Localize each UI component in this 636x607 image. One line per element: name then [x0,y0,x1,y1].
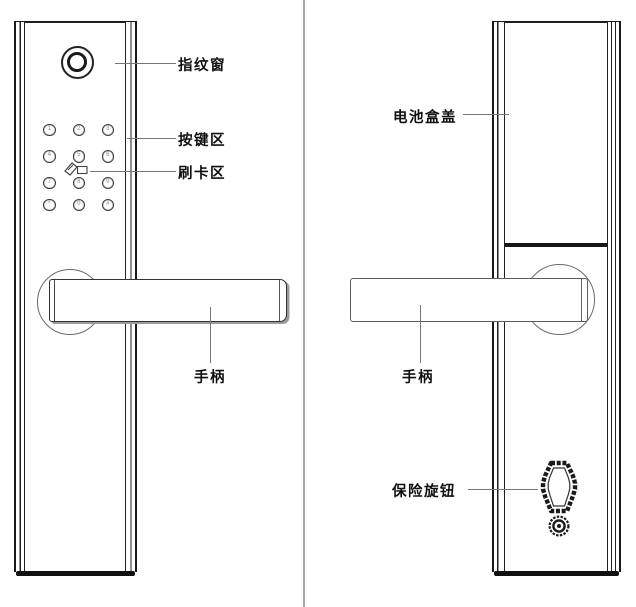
leader-line-fingerprint [115,63,176,64]
label-battery-cover: 电池盒盖 [393,106,457,127]
key-7: 7 [43,177,56,190]
key-4: 4 [43,150,56,163]
back-handle-lever [350,278,588,322]
fingerprint-lens [67,52,87,72]
label-card-area: 刷卡区 [178,162,226,183]
front-lock-bottom-edge [16,571,135,576]
card-swipe-icon [62,160,90,178]
key-1: 1 [43,124,56,137]
back-lock-right-rail [608,22,621,572]
key-8: 8 [73,177,86,190]
battery-cover-edge [505,243,607,247]
label-keypad-area: 按键区 [178,129,226,150]
key-6: 6 [102,150,115,163]
leader-line-keypad [127,138,176,139]
key-star: * [43,199,56,212]
leader-line-battery [463,114,509,115]
label-safety-knob: 保险旋钮 [392,480,456,501]
label-fingerprint-window: 指纹窗 [178,54,226,75]
leader-line-knob [468,489,538,490]
back-lock-bottom-edge [494,571,619,576]
label-front-handle: 手柄 [194,366,226,387]
front-handle-lever [49,279,287,322]
key-hash: # [102,199,115,212]
screw-icon [550,517,569,536]
key-9: 9 [102,177,115,190]
front-lock-left-rail [14,22,24,572]
key-2: 2 [73,124,86,137]
leader-line-front-handle [210,307,211,363]
leader-line-back-handle [420,305,421,363]
label-back-handle: 手柄 [402,366,434,387]
safety-knob-icon [537,456,581,540]
key-3: 3 [102,124,115,137]
leader-line-card [90,171,176,172]
key-0: 0 [73,199,86,212]
fingerprint-window-icon [61,46,94,79]
view-divider-line [303,0,305,607]
